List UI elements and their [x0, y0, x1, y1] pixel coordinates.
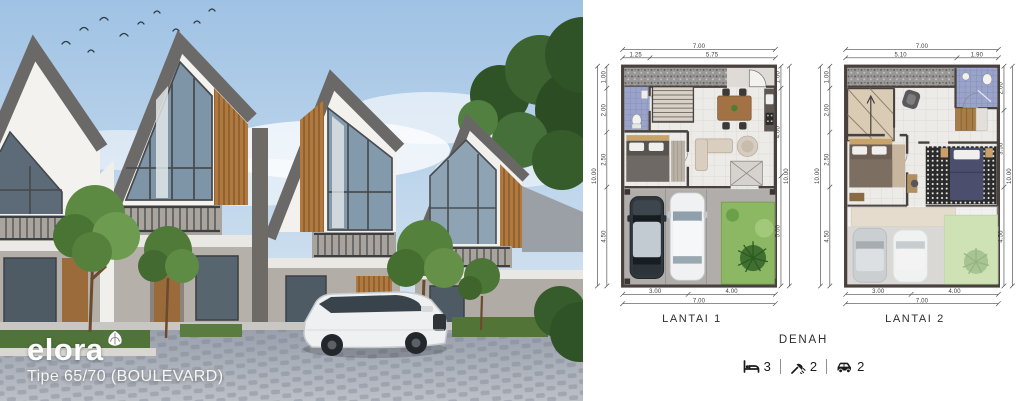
svg-text:4.50: 4.50: [824, 230, 830, 243]
car: [303, 292, 447, 358]
divider: [780, 359, 781, 374]
bathroom-count: 2: [810, 359, 817, 374]
stat-bathrooms: 2: [790, 359, 817, 374]
plans-row: 7.00 1.25 5.75 10.00 1.00 2.00 2.50 4.50…: [591, 42, 1017, 325]
svg-text:10.00: 10.00: [592, 168, 598, 184]
carport-count: 2: [857, 359, 864, 374]
floorplan-lantai-2: 7.00 5.10 1.90 10.00 1.00 2.00 2.50 4.50…: [814, 42, 1017, 325]
svg-text:7.00: 7.00: [692, 44, 705, 50]
plan2-roof-overlay: [847, 206, 998, 284]
svg-text:5.00: 5.00: [775, 224, 781, 237]
svg-text:10.00: 10.00: [1006, 168, 1012, 184]
svg-text:3.50: 3.50: [998, 142, 1004, 155]
bedroom-count: 3: [764, 359, 771, 374]
shower-icon: [790, 360, 806, 374]
plan1-garden: [721, 202, 774, 284]
svg-text:7.00: 7.00: [915, 44, 928, 50]
leaf-icon: [106, 330, 124, 348]
svg-text:2.00: 2.00: [998, 82, 1004, 95]
plan-label-lantai-1: LANTAI 1: [662, 313, 722, 325]
svg-text:5.75: 5.75: [705, 52, 718, 58]
floorplan-lantai-1: 7.00 1.25 5.75 10.00 1.00 2.00 2.50 4.50…: [591, 42, 794, 325]
svg-text:4.00: 4.00: [725, 289, 738, 295]
svg-text:5.10: 5.10: [894, 52, 907, 58]
section-caption: DENAH: [779, 334, 828, 346]
brochure: elora Tipe 65/70 (BOULEVARD): [0, 0, 1024, 401]
svg-text:3.00: 3.00: [649, 289, 662, 295]
svg-text:1.00: 1.00: [775, 71, 781, 84]
svg-text:2.50: 2.50: [601, 153, 607, 166]
svg-text:1.25: 1.25: [629, 52, 642, 58]
floorplan-2-drawing: 7.00 5.10 1.90 10.00 1.00 2.00 2.50 4.50…: [814, 42, 1017, 310]
floorplan-1-drawing: 7.00 1.25 5.75 10.00 1.00 2.00 2.50 4.50…: [591, 42, 794, 310]
svg-text:2.50: 2.50: [824, 153, 830, 166]
divider: [826, 359, 827, 374]
plan-label-lantai-2: LANTAI 2: [885, 313, 945, 325]
svg-text:10.00: 10.00: [783, 168, 789, 184]
hero-render: elora Tipe 65/70 (BOULEVARD): [0, 0, 583, 401]
svg-text:4.00: 4.00: [775, 125, 781, 138]
bed-icon: [743, 360, 760, 373]
svg-text:1.90: 1.90: [970, 52, 983, 58]
stat-carports: 2: [836, 359, 864, 374]
svg-text:2.00: 2.00: [824, 104, 830, 117]
brand-logo: elora: [27, 334, 104, 365]
svg-text:7.00: 7.00: [692, 298, 705, 304]
tagline: Tipe 65/70 (BOULEVARD): [27, 368, 223, 386]
svg-text:7.00: 7.00: [915, 298, 928, 304]
svg-text:4.50: 4.50: [601, 230, 607, 243]
plan1-car-white: [667, 193, 707, 281]
floorplans-panel: 7.00 1.25 5.75 10.00 1.00 2.00 2.50 4.50…: [583, 0, 1024, 401]
svg-text:10.00: 10.00: [815, 168, 821, 184]
svg-text:1.00: 1.00: [601, 71, 607, 84]
logo-block: elora Tipe 65/70 (BOULEVARD): [27, 334, 223, 386]
svg-text:4.00: 4.00: [948, 289, 961, 295]
svg-text:3.00: 3.00: [872, 289, 885, 295]
svg-text:1.00: 1.00: [824, 71, 830, 84]
stat-bedrooms: 3: [743, 359, 771, 374]
plan1-car-dark: [627, 197, 666, 279]
stats-row: 3 2 2: [743, 359, 865, 374]
alley-shadow: [252, 128, 268, 340]
svg-text:4.50: 4.50: [998, 230, 1004, 243]
svg-text:2.00: 2.00: [601, 104, 607, 117]
car-icon: [836, 360, 853, 373]
